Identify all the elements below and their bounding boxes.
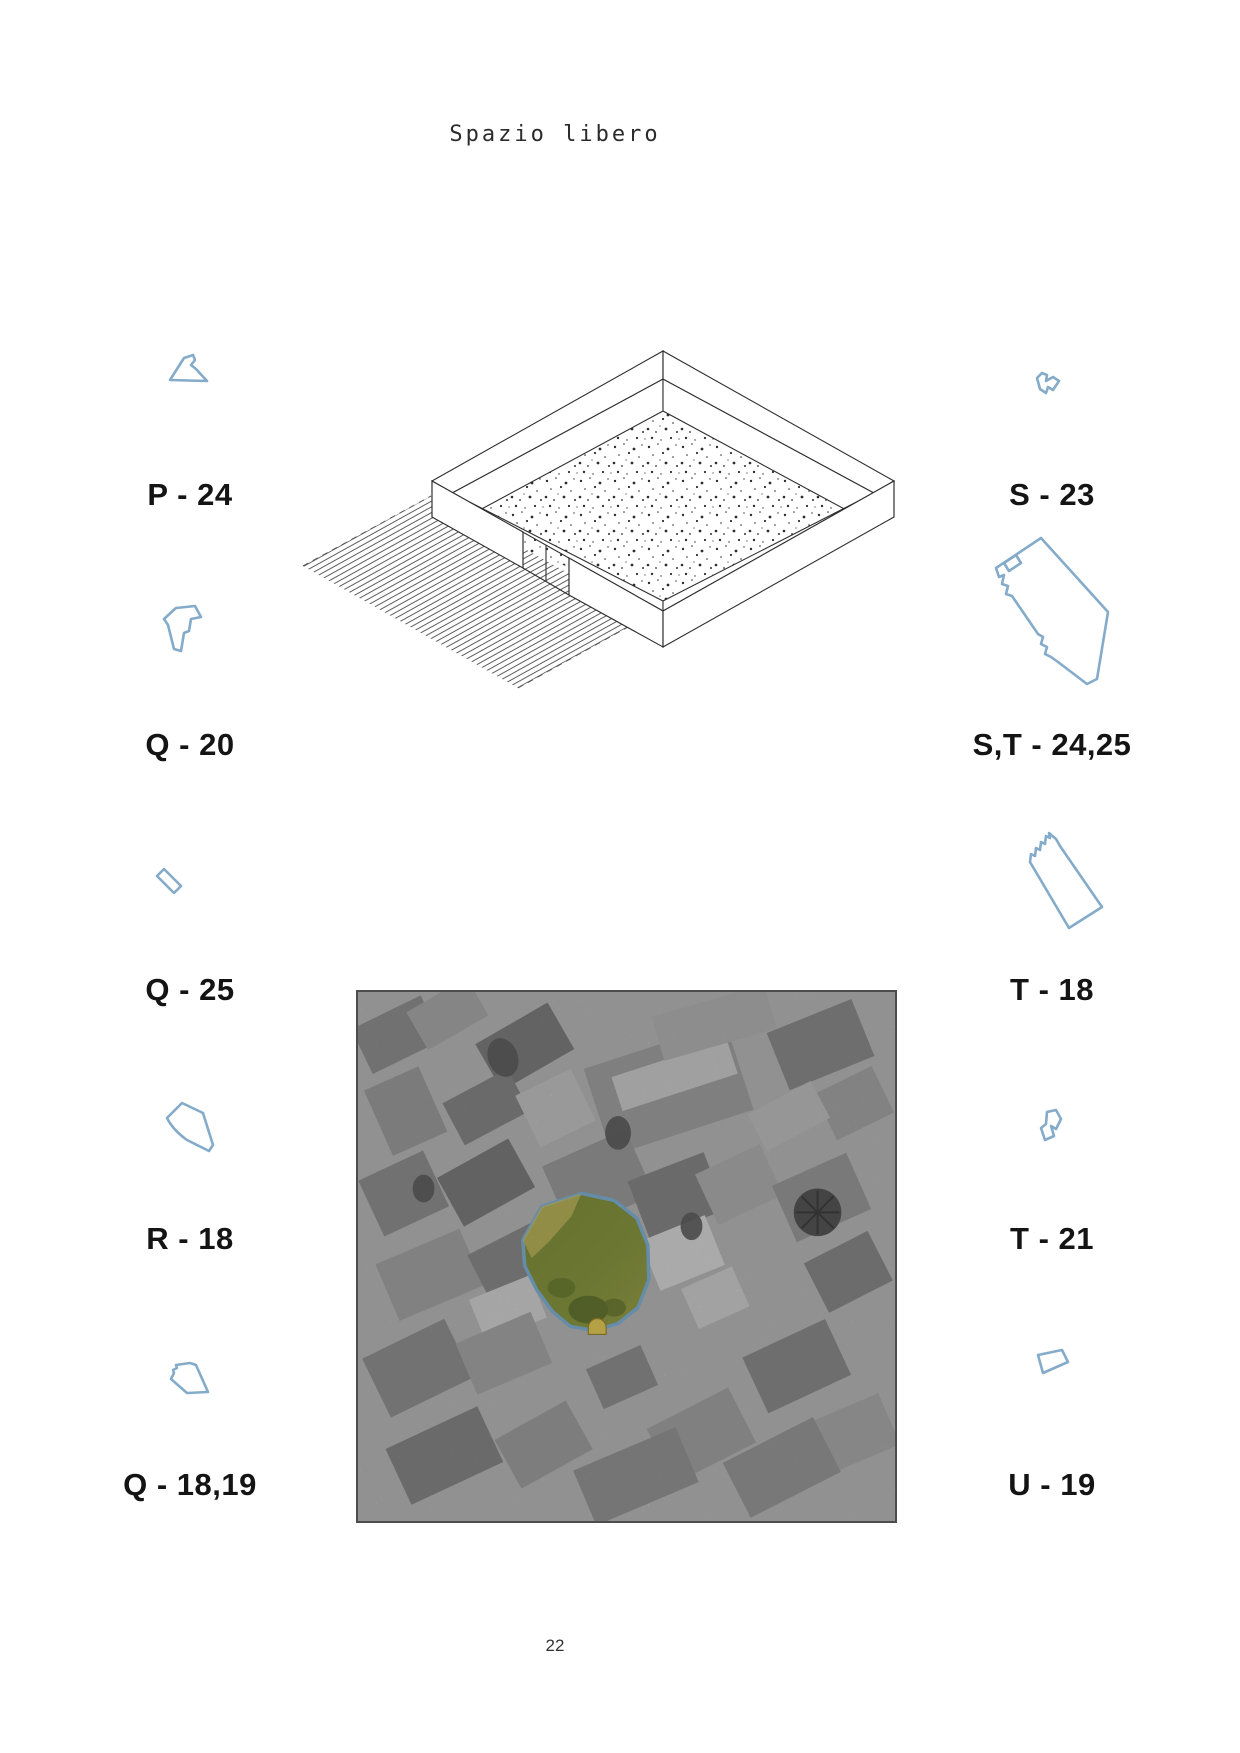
parcel-outline-t-21 bbox=[1038, 1106, 1066, 1144]
parcel-outline-q-25 bbox=[154, 868, 184, 894]
parcel-label-q-18-19: Q - 18,19 bbox=[40, 1467, 340, 1503]
document-page: Spazio libero bbox=[0, 0, 1240, 1753]
page-number: 22 bbox=[0, 1636, 1110, 1656]
parcel-label-u-19: U - 19 bbox=[902, 1467, 1202, 1503]
parcel-outline-p-24 bbox=[166, 351, 212, 387]
parcel-label-r-18: R - 18 bbox=[40, 1221, 340, 1257]
parcel-outline-s-23 bbox=[1033, 368, 1065, 398]
parcel-label-t-21: T - 21 bbox=[902, 1221, 1202, 1257]
parcel-label-q-20: Q - 20 bbox=[40, 727, 340, 763]
parcel-outline-q-18-19 bbox=[166, 1356, 214, 1398]
page-title: Spazio libero bbox=[0, 122, 1110, 147]
parcel-outline-r-18 bbox=[162, 1096, 218, 1156]
parcel-label-p-24: P - 24 bbox=[40, 477, 340, 513]
parcel-label-q-25: Q - 25 bbox=[40, 972, 340, 1008]
parcel-label-st-24-25: S,T - 24,25 bbox=[902, 727, 1202, 763]
parcel-outline-t-18 bbox=[1026, 820, 1106, 936]
parcel-label-t-18: T - 18 bbox=[902, 972, 1202, 1008]
parcel-outline-st-24-25 bbox=[988, 533, 1114, 689]
isometric-lot-drawing bbox=[290, 340, 910, 700]
parcel-label-s-23: S - 23 bbox=[902, 477, 1202, 513]
parcel-outline-u-19 bbox=[1033, 1344, 1073, 1378]
aerial-photo bbox=[356, 990, 897, 1523]
parcel-outline-q-20 bbox=[162, 602, 208, 656]
